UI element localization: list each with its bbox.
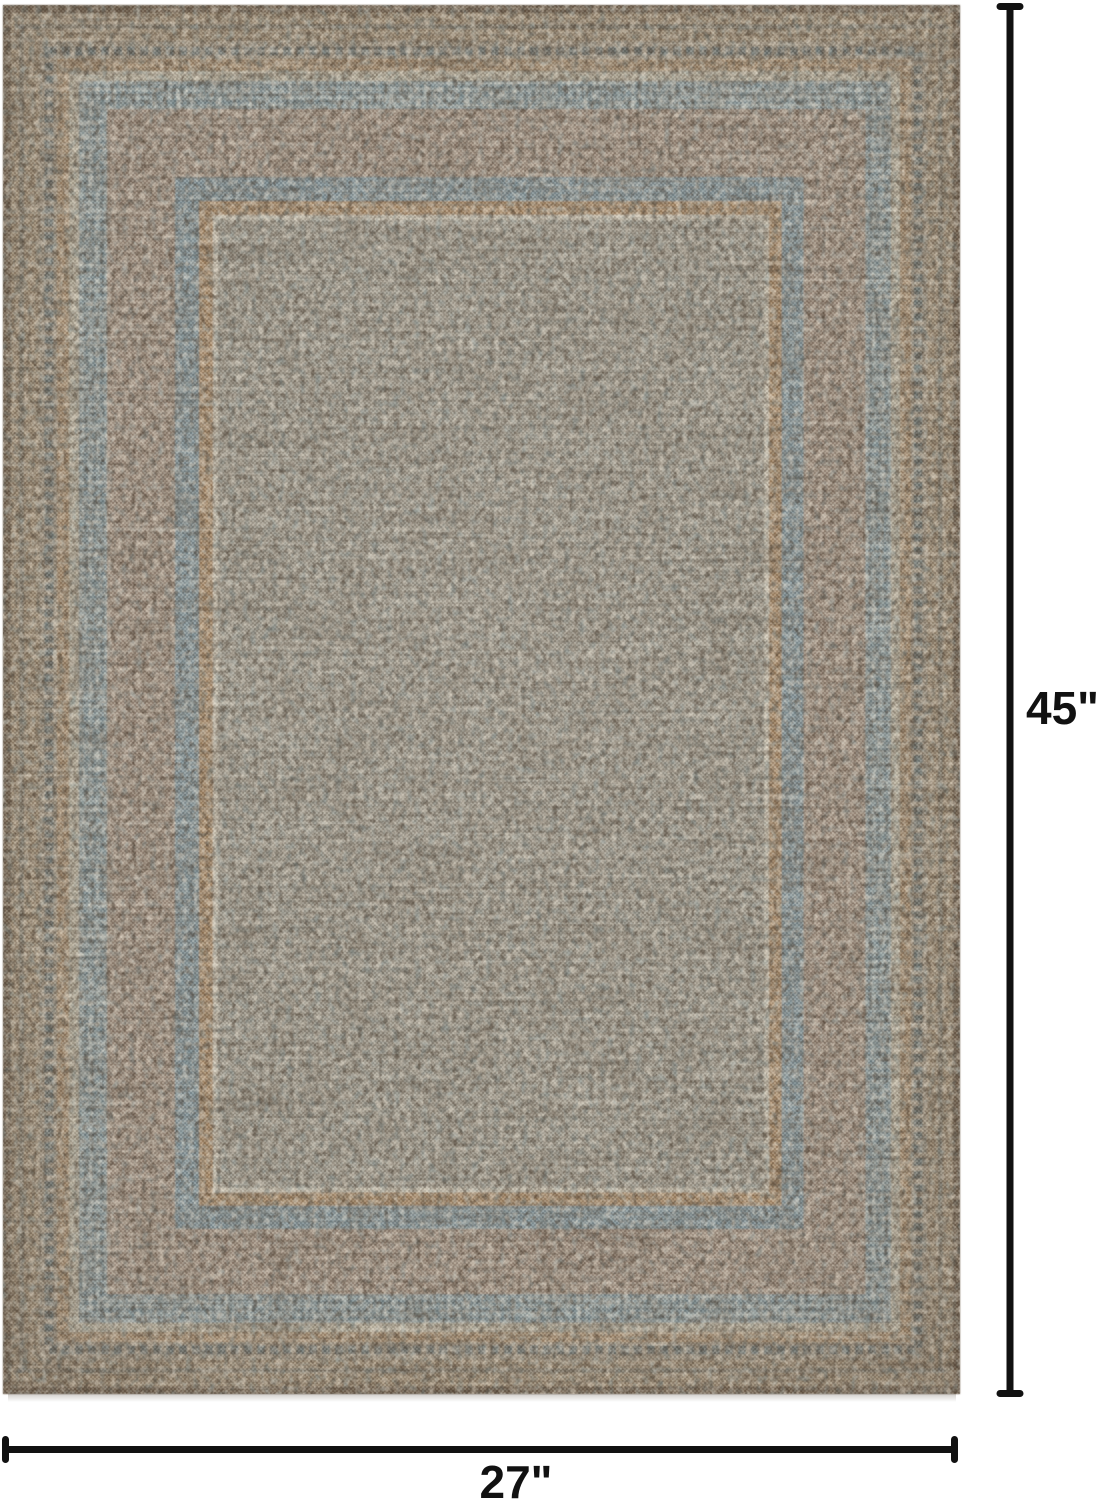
svg-text:45": 45" [1026,682,1096,734]
svg-text:27": 27" [480,1456,553,1500]
